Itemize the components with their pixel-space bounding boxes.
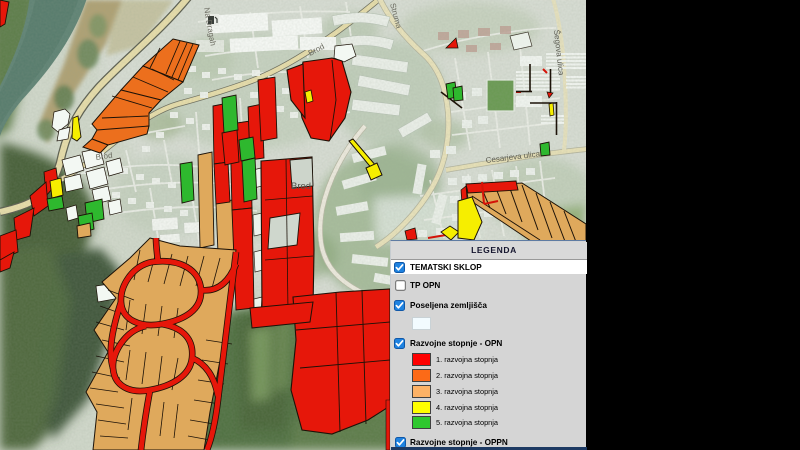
svg-text:Brod: Brod	[291, 181, 311, 192]
